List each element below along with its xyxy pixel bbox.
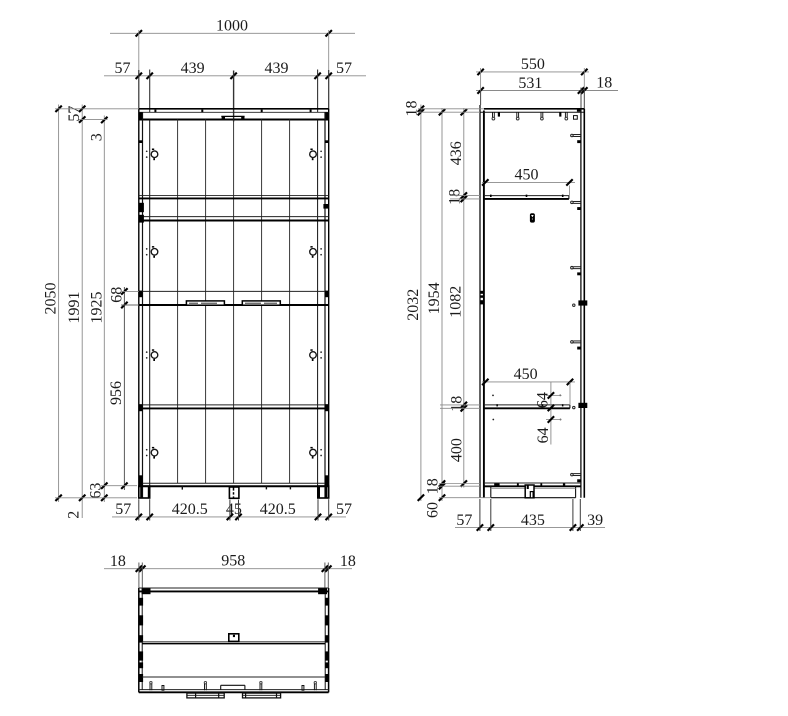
svg-text:439: 439 (265, 60, 289, 77)
svg-text:60: 60 (425, 502, 442, 518)
svg-text:550: 550 (521, 56, 545, 73)
svg-text:2050: 2050 (43, 283, 60, 315)
svg-text:3: 3 (88, 133, 105, 141)
svg-text:420.5: 420.5 (172, 501, 208, 518)
svg-text:63: 63 (88, 483, 105, 499)
svg-text:400: 400 (449, 438, 466, 462)
svg-text:1925: 1925 (88, 292, 105, 324)
svg-text:450: 450 (515, 167, 539, 184)
svg-text:2: 2 (65, 511, 82, 519)
svg-text:18: 18 (403, 101, 420, 117)
svg-text:439: 439 (181, 60, 205, 77)
svg-text:1082: 1082 (447, 286, 464, 318)
svg-text:45: 45 (226, 501, 242, 518)
svg-text:18: 18 (449, 396, 466, 412)
svg-text:958: 958 (221, 553, 245, 570)
svg-text:18: 18 (596, 75, 612, 92)
svg-text:956: 956 (108, 381, 125, 405)
svg-text:68: 68 (108, 287, 125, 303)
svg-text:57: 57 (115, 60, 131, 77)
svg-text:64: 64 (535, 392, 552, 408)
svg-text:1000: 1000 (216, 18, 248, 35)
svg-text:57: 57 (115, 501, 131, 518)
svg-text:57: 57 (336, 60, 352, 77)
svg-text:420.5: 420.5 (260, 501, 296, 518)
svg-text:64: 64 (535, 427, 552, 443)
svg-text:1991: 1991 (66, 292, 83, 324)
svg-text:18: 18 (446, 189, 463, 205)
svg-text:436: 436 (448, 141, 465, 165)
svg-text:18: 18 (110, 553, 126, 570)
svg-text:18: 18 (340, 553, 356, 570)
svg-text:57: 57 (456, 512, 472, 529)
svg-text:18: 18 (425, 478, 442, 494)
svg-text:57: 57 (336, 501, 352, 518)
svg-text:531: 531 (518, 75, 542, 92)
svg-text:1954: 1954 (426, 282, 443, 314)
svg-text:450: 450 (514, 366, 538, 383)
svg-text:39: 39 (587, 512, 603, 529)
svg-text:435: 435 (521, 512, 545, 529)
svg-text:2032: 2032 (405, 289, 422, 321)
